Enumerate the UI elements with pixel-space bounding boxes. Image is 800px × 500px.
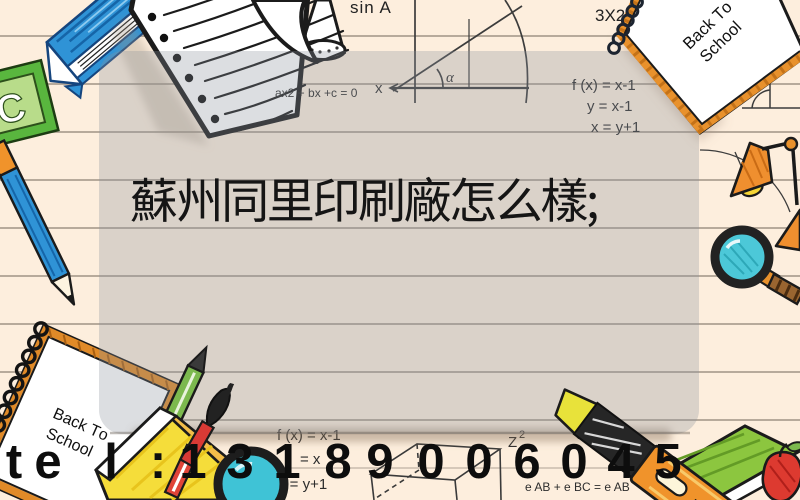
svg-text::: :: [150, 435, 166, 489]
svg-text:0: 0: [417, 435, 444, 489]
svg-text:1: 1: [179, 435, 206, 489]
svg-text:0: 0: [465, 435, 492, 489]
svg-text:4: 4: [607, 435, 634, 489]
svg-text:3: 3: [226, 435, 253, 489]
svg-text:9: 9: [366, 435, 393, 489]
svg-text:l: l: [104, 435, 118, 489]
svg-text:e: e: [34, 435, 61, 489]
svg-text:0: 0: [560, 435, 587, 489]
svg-text:6: 6: [513, 435, 540, 489]
svg-text:5: 5: [654, 435, 681, 489]
svg-text:1: 1: [273, 435, 300, 489]
svg-text:sin A: sin A: [350, 0, 392, 17]
svg-text:t: t: [6, 435, 22, 489]
svg-text:= x: = x: [300, 451, 321, 468]
svg-text:8: 8: [324, 435, 351, 489]
